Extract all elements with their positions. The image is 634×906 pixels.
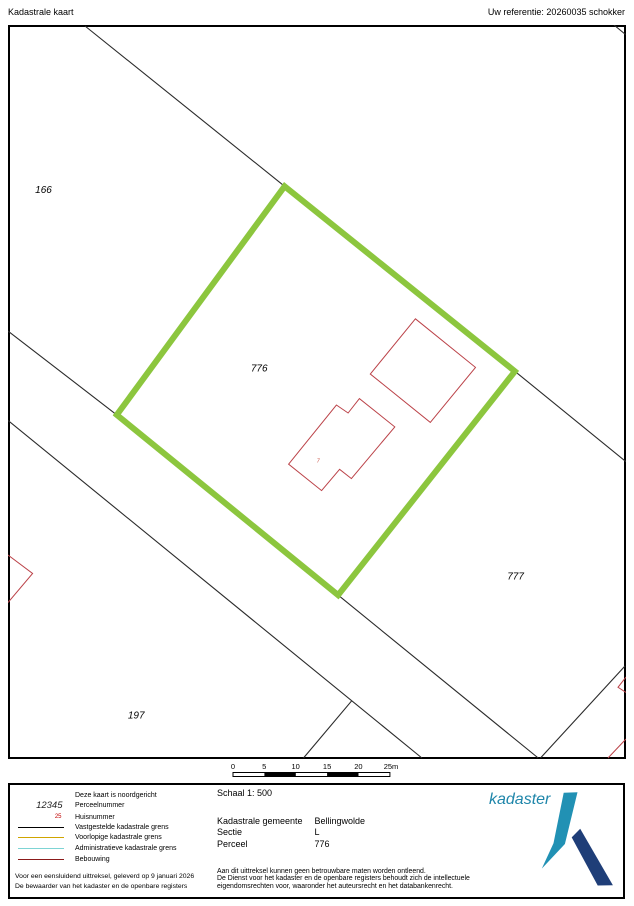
svg-text:7: 7 <box>317 459 320 465</box>
svg-text:166: 166 <box>35 185 52 196</box>
svg-text:777: 777 <box>507 572 524 583</box>
svg-text:0: 0 <box>231 762 235 771</box>
svg-text:20: 20 <box>354 762 362 771</box>
svg-text:776: 776 <box>251 364 268 375</box>
svg-text:197: 197 <box>128 710 145 721</box>
svg-text:15: 15 <box>323 762 331 771</box>
svg-text:25m: 25m <box>384 762 399 771</box>
svg-text:5: 5 <box>262 762 266 771</box>
svg-text:10: 10 <box>292 762 300 771</box>
